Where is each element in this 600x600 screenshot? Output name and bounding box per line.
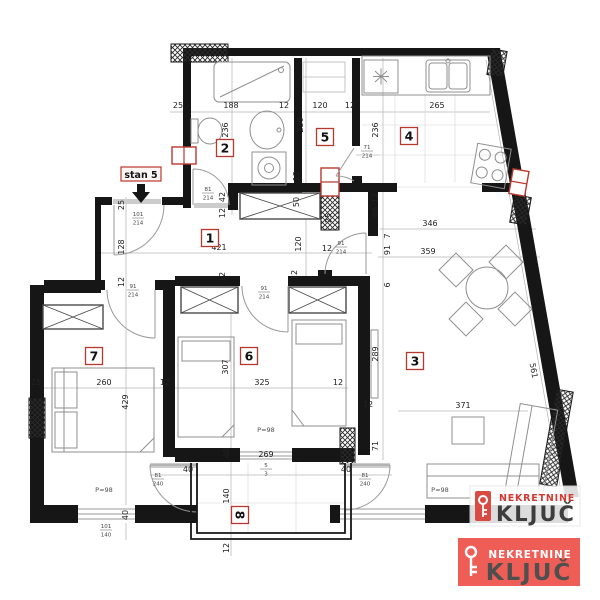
logo-name: KLJUČ xyxy=(486,558,573,586)
dimension-label: 12 xyxy=(279,101,289,110)
dimension-label: 265 xyxy=(429,101,444,110)
door-width-label: 5 xyxy=(264,463,268,469)
dimension-label: 66 xyxy=(371,207,380,217)
room-number-text: 3 xyxy=(411,354,420,369)
door-width-label: 81 xyxy=(155,473,162,479)
dimension-label: 7 xyxy=(383,233,392,238)
snowflake-icon xyxy=(373,69,389,85)
dimension-label: 40 xyxy=(222,448,231,458)
dimension-label: 12 xyxy=(218,272,227,282)
room-number: 6 xyxy=(241,348,258,365)
dimension-label: 91 xyxy=(383,245,392,255)
door-width-label: 91 xyxy=(261,286,268,292)
door-width-label: 91 xyxy=(130,284,137,290)
dimension-label: 12 xyxy=(371,193,380,203)
agency-logo-badge: NEKRETNINE KLJUČ xyxy=(458,538,580,586)
dimension-label: 40 xyxy=(183,465,193,474)
dimension-label: 269 xyxy=(258,450,273,459)
door-width-label: 91 xyxy=(338,241,345,247)
dimension-label: 71 xyxy=(371,441,380,451)
dimension-label: 12 xyxy=(290,270,299,280)
dimension-label: 236 xyxy=(221,122,230,137)
room-number-text: 2 xyxy=(221,141,230,156)
dimension-label: 120 xyxy=(294,236,303,251)
dimension-label: 371 xyxy=(455,401,470,410)
dimension-label: 289 xyxy=(371,346,380,361)
apartment-label-text: stan 5 xyxy=(124,170,157,181)
dimension-label: 12 xyxy=(292,171,301,181)
room-number: 5 xyxy=(317,129,334,146)
door-height-label: 214 xyxy=(133,221,144,227)
room-number: 8 xyxy=(232,507,249,524)
door-height-label: 214 xyxy=(203,196,214,202)
door-height-label: 214 xyxy=(128,293,139,299)
room-number: 7 xyxy=(86,348,103,365)
floor-plan: 2518812120122652362362364212125025126679… xyxy=(0,0,600,600)
kitchen-sink xyxy=(426,60,470,92)
door-height-label: 214 xyxy=(362,154,373,160)
dimension-label: 12 xyxy=(117,277,126,287)
dimension-label: 40 xyxy=(341,465,351,474)
dimension-label: 188 xyxy=(223,101,238,110)
room-number: 3 xyxy=(407,353,424,370)
dimension-label: 12 xyxy=(345,101,355,110)
door-height-label: 140 xyxy=(101,533,112,539)
room-number-text: 6 xyxy=(245,349,254,364)
bedroom6-door xyxy=(242,286,288,332)
parapet-note: P=98 xyxy=(257,426,275,434)
dimension-label: 128 xyxy=(117,239,126,254)
door-height-label: 214 xyxy=(259,295,270,301)
room-number: 2 xyxy=(217,140,234,157)
logo-name: KLJUČ xyxy=(496,501,576,526)
door-width-label: 101 xyxy=(133,212,144,218)
room-number-text: 5 xyxy=(321,130,330,145)
dimension-label: 140 xyxy=(222,488,231,503)
hall-closet xyxy=(240,193,320,219)
apartment-label: stan 5 xyxy=(121,167,161,203)
dimension-label: 346 xyxy=(422,219,437,228)
door-width-label: 81 xyxy=(205,187,212,193)
dimension-label: 359 xyxy=(420,247,435,256)
tv-board xyxy=(371,330,378,398)
dimension-label: 25 xyxy=(117,200,126,210)
balcony-railing xyxy=(191,463,351,539)
floor-plan-page: 2518812120122652362362364212125025126679… xyxy=(0,0,600,600)
door-width-label: 101 xyxy=(101,524,112,530)
dimension-label: 6 xyxy=(383,282,392,287)
dimension-label: 25 xyxy=(31,378,41,387)
dimension-label: 236 xyxy=(371,122,380,137)
door-width-label: 81 xyxy=(362,473,369,479)
room-number: 4 xyxy=(401,128,418,145)
door-height-label: 214 xyxy=(336,250,347,256)
parapet-note: P=98 xyxy=(95,486,113,494)
dimension-label: 236 xyxy=(296,117,305,132)
door-height-label: 240 xyxy=(153,482,164,488)
dimension-label: 307 xyxy=(221,359,230,374)
dining-chair xyxy=(439,245,532,336)
dimension-label: 561 xyxy=(528,362,540,379)
dimension-label: 42 xyxy=(218,192,227,202)
washbasin xyxy=(250,111,284,149)
room-number-text: 4 xyxy=(405,129,414,144)
room-number-text: 1 xyxy=(206,231,215,246)
room-number: 1 xyxy=(202,230,219,247)
dimension-label: 25 xyxy=(173,101,183,110)
agency-logo-watermark: NEKRETNINE KLJUČ xyxy=(470,486,580,526)
dimension-label: 12 xyxy=(322,244,332,253)
dimension-label: 325 xyxy=(254,378,269,387)
toilet xyxy=(191,119,198,143)
dimension-label: 12 xyxy=(333,378,343,387)
door-height-label: 240 xyxy=(360,482,371,488)
pantry-door xyxy=(336,148,354,181)
dimension-label: 12 xyxy=(160,378,170,387)
dining-table xyxy=(466,267,508,309)
dimension-label: 12 xyxy=(218,208,227,218)
room-number-text: 7 xyxy=(90,349,99,364)
dimension-label: 260 xyxy=(96,378,111,387)
dimension-label: 50 xyxy=(292,197,301,207)
dimension-label: 120 xyxy=(312,101,327,110)
dimension-label: 25 xyxy=(324,213,333,223)
dimension-label: 40 xyxy=(121,510,130,520)
room-number-text: 8 xyxy=(233,511,248,520)
parapet-note: P=98 xyxy=(431,486,449,494)
wardrobe xyxy=(43,287,346,329)
dimension-label: 12 xyxy=(222,543,231,553)
dimension-label: 429 xyxy=(121,394,130,409)
door-height-label: 3 xyxy=(264,472,268,478)
dimension-label: 12 xyxy=(363,400,373,409)
door-width-label: 71 xyxy=(364,145,371,151)
coffee-table xyxy=(452,417,484,444)
